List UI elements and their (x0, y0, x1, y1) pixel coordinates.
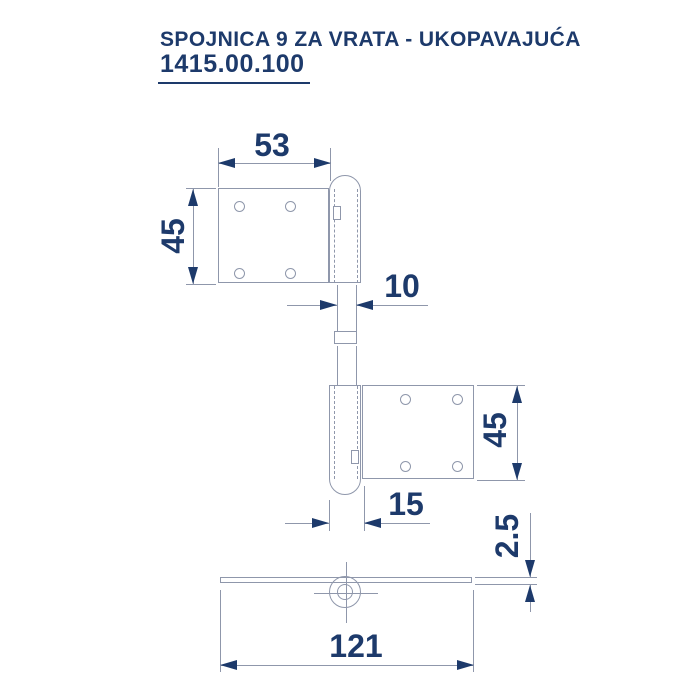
dim-arrow (188, 189, 198, 206)
screw-hole (285, 201, 296, 212)
pin-hidden-line (357, 386, 358, 479)
technical-drawing: SPOJNICA 9 ZA VRATA - UKOPAVAJUĆA 1415.0… (0, 0, 700, 700)
dim-arrow (218, 158, 235, 168)
dim-arrow (320, 300, 337, 310)
pin-inner-circle (337, 584, 353, 600)
dimension-line (220, 665, 474, 666)
dim-arrow (512, 463, 522, 480)
dim-arrow (220, 660, 237, 670)
dim-arrow (512, 386, 522, 403)
dim-label-thickness: 2.5 (491, 506, 523, 566)
dim-label-pin-width: 10 (378, 270, 426, 302)
dim-arrow (364, 518, 381, 528)
pin-hidden-line (334, 189, 335, 283)
dim-arrow (312, 518, 329, 528)
dim-arrow (525, 560, 535, 577)
dim-arrow (314, 158, 331, 168)
screw-hole (400, 394, 411, 405)
part-number: 1415.00.100 (158, 50, 310, 84)
screw-hole (285, 268, 296, 279)
extension-line (329, 500, 330, 531)
dim-label-top-height: 45 (157, 212, 189, 260)
pin-edge (356, 346, 357, 385)
screw-hole (400, 461, 411, 472)
pin-slot (351, 450, 359, 464)
pin-edge (337, 346, 338, 385)
screw-hole (234, 201, 245, 212)
dim-label-bottom-height: 45 (479, 406, 511, 454)
pin-collar (334, 331, 357, 344)
screw-hole (234, 268, 245, 279)
drawing-title: SPOJNICA 9 ZA VRATA - UKOPAVAJUĆA (160, 28, 581, 52)
center-line (346, 562, 347, 623)
dim-label-top-width: 53 (248, 129, 296, 161)
extension-line (475, 577, 537, 578)
pin-slot (333, 206, 341, 220)
pin-hidden-line (334, 386, 335, 479)
screw-hole (452, 461, 463, 472)
screw-hole (452, 394, 463, 405)
extension-line (186, 284, 216, 285)
dim-label-total-length: 121 (320, 630, 392, 662)
dim-arrow (525, 585, 535, 602)
pin-hidden-line (357, 189, 358, 283)
dim-arrow (188, 267, 198, 284)
dim-arrow (356, 300, 373, 310)
dim-arrow (457, 660, 474, 670)
dim-label-knuckle-width: 15 (382, 488, 430, 520)
pin-edge (337, 285, 338, 331)
